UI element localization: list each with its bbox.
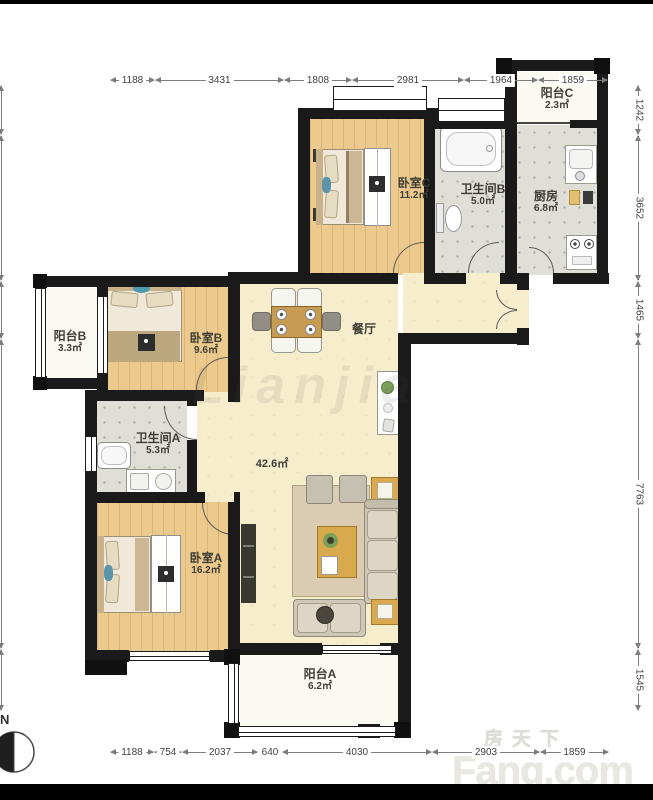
bench-icon [322,312,341,331]
wall [298,108,310,284]
dimension-right: 7763 [632,339,645,649]
drain-icon [486,145,493,152]
bed-blanket [135,538,149,611]
wall [228,643,322,655]
sink-basin [569,149,593,169]
wall-post [496,58,512,74]
room-name: 卫生间B [461,182,506,196]
ottoman-icon [339,475,367,503]
dimension-bottom: 4030 [282,746,432,759]
wall [517,273,529,290]
room-label-balcony-b: 阳台B 3.3㎡ [54,329,87,355]
plate-icon [276,324,287,335]
tray-icon [321,556,338,575]
window [228,663,239,724]
wall-post [33,376,47,390]
window [97,296,108,374]
vase-icon [382,418,395,432]
wall-post [33,274,47,288]
wall-post [394,722,410,738]
basin-icon [130,473,149,490]
bed-blanket-edge [346,151,349,223]
bench-icon [252,312,271,331]
dimension-top: 2981 [352,74,464,87]
room-area: 6.2㎡ [304,681,337,693]
room-name: 餐厅 [352,322,376,336]
toilet-bowl [445,205,462,232]
room-area: 5.0㎡ [461,196,506,208]
wall [597,60,608,283]
wall [398,333,529,344]
dimension-bottom: 640 [258,746,282,759]
wall [553,273,609,284]
counter-item [583,191,593,204]
dimension-left-cutoff [0,649,8,711]
dimension-top: 1188 [110,74,155,87]
room-label-bedroom-b: 卧室B 9.6㎡ [190,331,223,357]
room-name: 卧室C [398,176,431,190]
pillow-icon [324,190,339,219]
room-floor-hall-nook [197,390,240,502]
window [129,651,210,661]
bottom-bar [0,784,653,800]
room-area: 2.3㎡ [541,100,574,112]
wall-post [594,58,610,74]
counter-item [569,190,580,205]
dimension-right: 3652 [632,135,645,281]
room-name: 阳台B [54,329,87,343]
wall [33,276,240,287]
stove-tray [572,256,592,265]
dimension-bottom: 1188 [110,746,154,759]
top-bar [0,0,653,4]
burner-icon [570,239,580,249]
balcony-divider-line [517,122,570,124]
armchair-icon [316,606,334,624]
room-label-dining: 餐厅 [352,322,376,336]
wall [97,372,108,392]
sofa-cushion [367,540,398,571]
bed-blanket [349,151,362,223]
window [322,645,392,654]
bed-headboard [97,536,104,613]
wall [228,502,240,652]
dimension-top: 1964 [464,74,538,87]
room-area: 5.3㎡ [136,445,181,457]
side-table-lamp [377,604,393,619]
dimension-top: 3431 [155,74,284,87]
tv-dot [375,181,379,185]
dimension-bottom: 2037 [182,746,258,759]
plant-icon [381,381,394,394]
plate-icon [305,309,316,320]
wall [85,390,97,438]
floor-plan-image: { "page": {"type": "apartment-floor-plan… [0,0,653,800]
bed-decor [104,565,113,581]
window [35,288,46,378]
pillow-icon [110,291,138,309]
plate-icon [305,324,316,335]
room-label-balcony-c: 阳台C 2.3㎡ [541,86,574,112]
tv-stand-icon [241,524,256,603]
toilet-icon [436,203,444,233]
dimension-left-cutoff [0,135,8,281]
dimension-left-cutoff [0,281,8,339]
room-name: 卧室B [190,331,223,345]
sofa-cushion [367,572,398,600]
plate-icon [276,309,287,320]
room-area: 16.2㎡ [190,565,223,577]
wall [228,276,240,402]
wall [187,392,197,406]
wall [424,273,466,284]
room-name: 卧室A [190,551,223,565]
window [333,86,427,111]
burner-icon [584,239,594,249]
room-label-kitchen: 厨房 6.8㎡ [534,189,558,215]
room-name: 阳台A [304,667,337,681]
wall [85,492,97,658]
tv-dot [164,571,168,575]
room-label-balcony-a: 阳台A 6.2㎡ [304,667,337,693]
bathtub-inner [101,446,127,465]
dimension-right: 1242 [632,85,645,135]
compass-north-label: N [0,712,9,727]
room-name: 厨房 [534,189,558,203]
ottoman-icon [306,475,333,504]
window [85,436,97,472]
window [238,726,396,737]
pillow-icon [145,291,173,309]
wall [228,272,310,284]
sofa-cushion [367,510,398,539]
compass-icon: N [0,708,46,778]
room-area: 9.6㎡ [190,345,223,357]
dimension-top: 1859 [538,74,608,87]
dimension-left-cutoff [0,85,8,135]
wall [97,276,108,298]
dimension-bottom: 1859 [540,746,609,759]
wall [505,60,517,273]
room-area: 42.6㎡ [256,458,288,470]
room-label-bathroom-b: 卫生间B 5.0㎡ [461,182,506,208]
bowl-icon [383,403,393,413]
wall-post [85,660,127,675]
room-label-living: 42.6㎡ [256,458,288,470]
room-name: 阳台C [541,86,574,100]
tv-stand-detail [243,576,254,578]
tv-stand-detail [243,545,254,547]
room-area: 11.2㎡ [398,190,431,202]
room-area: 6.8㎡ [534,203,558,215]
wall [298,273,398,284]
tv-dot [144,339,148,343]
room-label-bathroom-a: 卫生间A 5.3㎡ [136,431,181,457]
wall [85,492,205,503]
plant-icon [323,533,338,548]
dimension-bottom: 754 [154,746,182,759]
window [438,98,505,122]
dimension-top: 1808 [284,74,352,87]
faucet-icon [575,171,585,181]
wall [398,335,411,738]
bed-decor [322,177,331,193]
dimension-left-cutoff [0,339,8,649]
room-label-bedroom-a: 卧室A 16.2㎡ [190,551,223,577]
basin-icon [155,473,172,490]
dimension-right: 1465 [632,281,645,339]
room-name: 卫生间A [136,431,181,445]
side-table-lamp [377,482,393,499]
dimension-bottom: 2903 [432,746,540,759]
sofa-cushion [330,603,361,633]
room-area: 3.3㎡ [54,343,87,355]
wall [570,120,608,128]
room-label-bedroom-c: 卧室C 11.2㎡ [398,176,431,202]
dimension-right: 1545 [632,649,645,711]
